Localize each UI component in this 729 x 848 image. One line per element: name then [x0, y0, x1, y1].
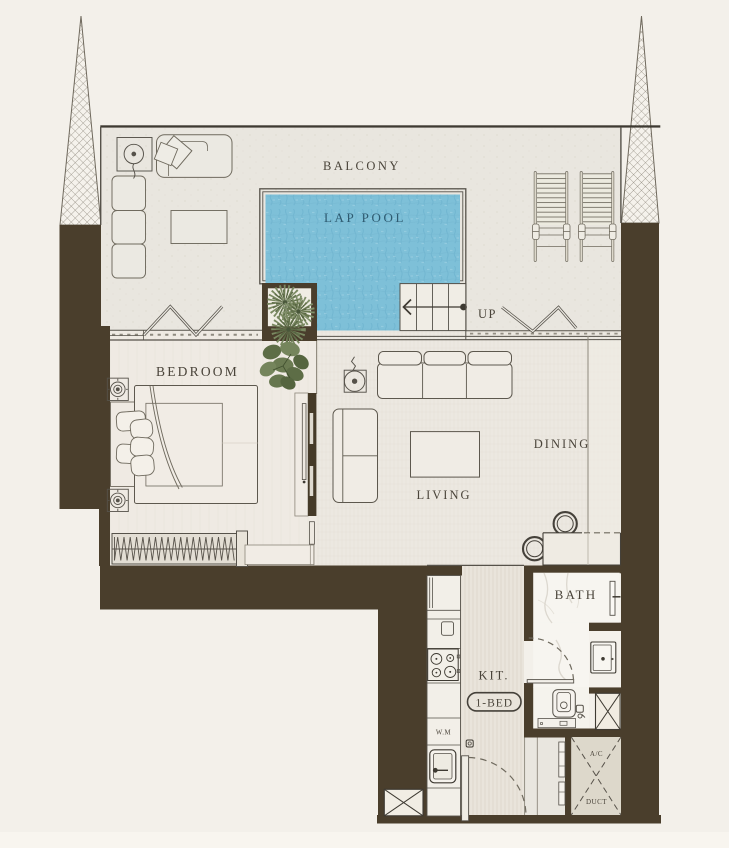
svg-text:DINING: DINING — [534, 437, 590, 451]
svg-text:1-BED: 1-BED — [476, 698, 514, 710]
svg-text:DUCT: DUCT — [586, 798, 607, 806]
svg-text:BATH: BATH — [555, 587, 598, 602]
svg-text:KIT.: KIT. — [478, 669, 509, 683]
svg-text:LIVING: LIVING — [416, 488, 471, 502]
svg-text:A/C: A/C — [590, 750, 603, 758]
svg-text:LAP POOL: LAP POOL — [324, 210, 406, 225]
svg-text:UP: UP — [478, 307, 497, 321]
svg-text:BEDROOM: BEDROOM — [156, 364, 239, 379]
svg-text:W.M: W.M — [436, 730, 451, 737]
svg-text:BALCONY: BALCONY — [323, 159, 401, 173]
